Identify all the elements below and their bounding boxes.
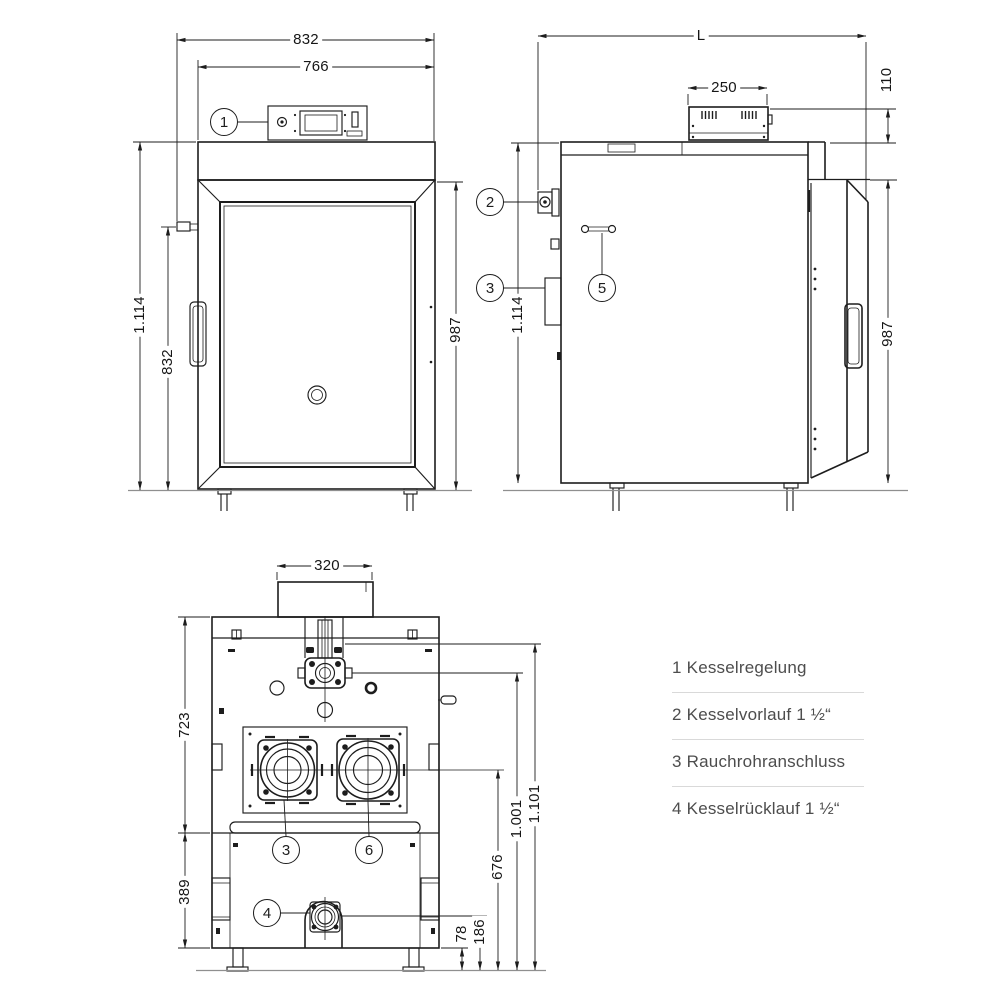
feet-back (227, 948, 424, 971)
dim-front-height-body: 987 (448, 314, 464, 346)
flue-pipe-connection-side (545, 278, 561, 360)
legend-item-number: 4 (672, 799, 682, 818)
legend-item-label: Rauchrohranschluss (687, 752, 846, 771)
dim-back-return-offset: 78 (454, 922, 470, 945)
safety-valve-assembly (270, 616, 376, 722)
dim-front-width-outer: 832 (290, 32, 322, 48)
legend-item-kesselregelung: 1Kesselregelung (672, 646, 864, 693)
flue-outlet-box (278, 582, 373, 617)
front-view-drawing (128, 33, 472, 511)
back-dimension-lines (178, 566, 541, 970)
callout-2-kesselvorlauf: 2 (476, 188, 504, 216)
dim-side-control-height: 110 (879, 65, 895, 96)
legend-item-rauchrohranschluss: 3Rauchrohranschluss (672, 740, 864, 787)
dim-back-return-height: 186 (472, 916, 488, 948)
boiler-body-back (212, 617, 456, 948)
feet-side (610, 483, 798, 511)
door-knob (308, 386, 326, 404)
side-dimension-lines (503, 36, 897, 483)
legend-item-label: Kesselregelung (687, 658, 807, 677)
legend-item-kesselvorlauf: 2Kesselvorlauf 1 ½“ (672, 693, 864, 740)
boiler-line-drawing (0, 0, 1000, 1000)
boiler-body-front (198, 142, 435, 489)
dim-back-lower-height: 389 (177, 876, 193, 908)
legend-item-kesselruecklauf: 4Kesselrücklauf 1 ½“ (672, 787, 864, 833)
dim-front-height-fitting: 832 (160, 346, 176, 378)
boiler-body-side (561, 142, 870, 483)
legend-item-number: 2 (672, 705, 682, 724)
legend-item-label: Kesselrücklauf 1 ½“ (687, 799, 840, 818)
callout-6-port: 6 (355, 836, 383, 864)
cleaning-lever (582, 226, 616, 275)
dim-back-valve-height: 1.001 (509, 797, 525, 842)
front-dimension-lines (133, 33, 463, 490)
callout-5-lever: 5 (588, 274, 616, 302)
callout-4-kesselruecklauf: 4 (253, 899, 281, 927)
dim-side-height-body: 987 (880, 318, 896, 350)
top-control-unit (689, 107, 772, 140)
legend-item-label: Kesselvorlauf 1 ½“ (687, 705, 831, 724)
legend: 1Kesselregelung 2Kesselvorlauf 1 ½“ 3Rau… (672, 646, 864, 833)
callout-3-rauchrohr-side: 3 (476, 274, 504, 302)
dim-front-width-inner: 766 (300, 59, 332, 75)
dim-back-total-height: 1.101 (527, 782, 543, 827)
return-port (305, 897, 342, 948)
boiler-door-profile (811, 180, 868, 478)
callout-3-rauchrohr-back: 3 (272, 836, 300, 864)
dim-back-upper-height: 723 (177, 709, 193, 741)
dim-side-height-total: 1.114 (510, 293, 526, 336)
flow-connection-fitting (538, 189, 559, 249)
control-panel (268, 106, 367, 140)
side-view-drawing (503, 36, 908, 511)
legend-item-number: 3 (672, 752, 682, 771)
legend-item-number: 1 (672, 658, 682, 677)
back-view-drawing (178, 566, 546, 971)
dim-front-height-total: 1.114 (132, 293, 148, 336)
side-fitting (177, 222, 198, 231)
dim-back-flue-width: 320 (311, 558, 343, 574)
feet-front (218, 489, 417, 511)
side-lever (441, 696, 456, 704)
dim-side-control-width: 250 (708, 80, 740, 96)
dim-side-length: L (694, 28, 709, 44)
technical-drawing-page: 832 766 1.114 832 987 L 250 110 1.114 98… (0, 0, 1000, 1000)
dim-back-port-height: 676 (490, 851, 506, 883)
callout-1-kesselregelung: 1 (210, 108, 238, 136)
